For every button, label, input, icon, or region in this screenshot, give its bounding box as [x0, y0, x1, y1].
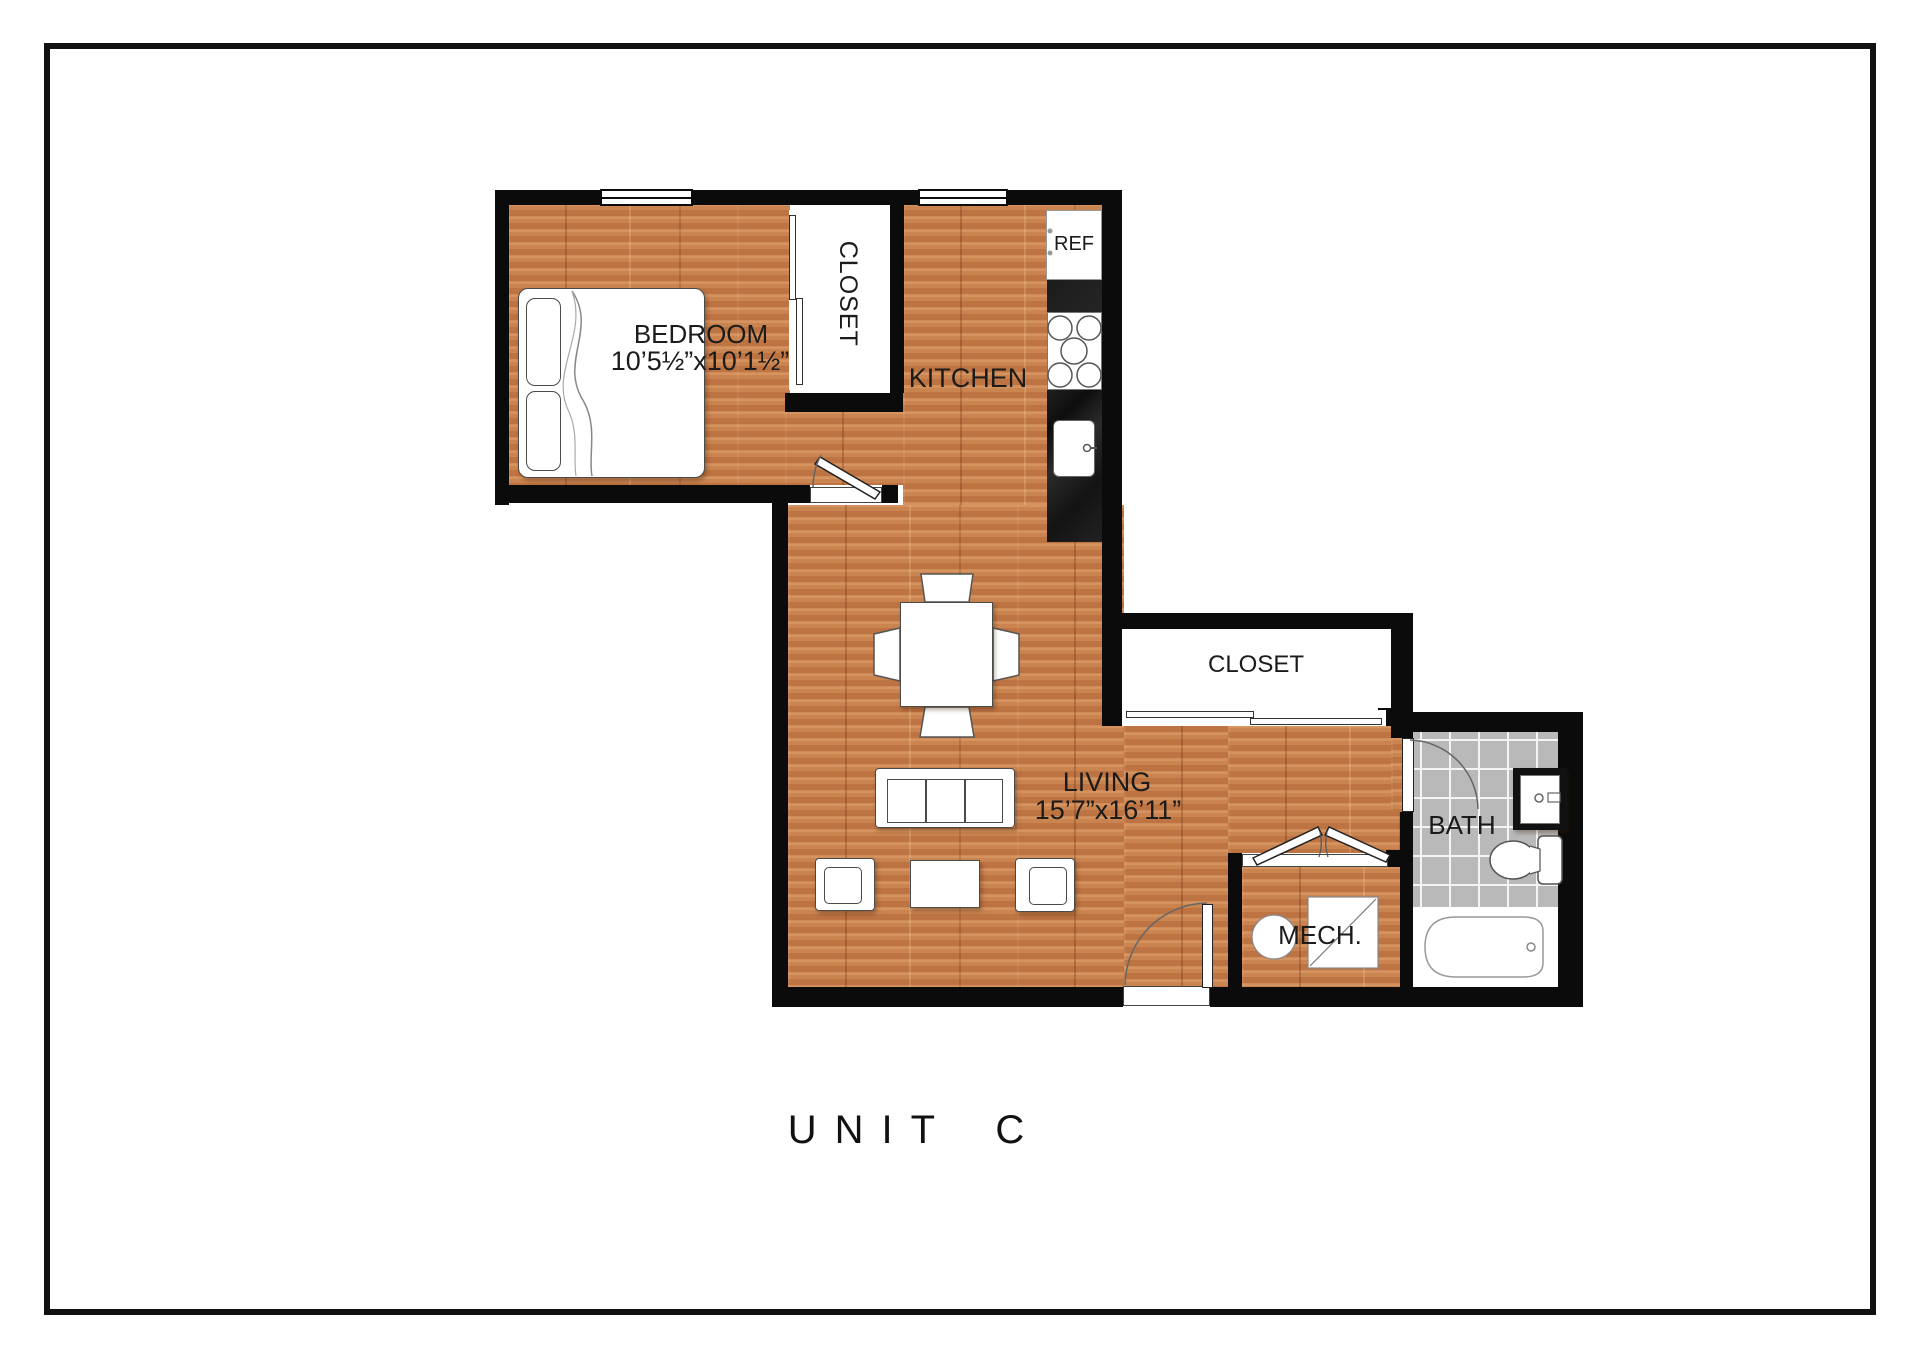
- bedroom-window: [600, 189, 693, 206]
- bed: [518, 288, 705, 478]
- hall-closet-label: CLOSET: [1106, 652, 1406, 678]
- wall-top: [495, 190, 1122, 205]
- mech-door-threshold: [1242, 854, 1388, 867]
- sofa-cushion: [887, 779, 926, 823]
- bath-door-leaf: [1402, 738, 1414, 812]
- bed-pillow: [526, 391, 561, 471]
- entry-door-threshold: [1123, 986, 1210, 1006]
- living-dims: 15’7”x16’11”: [958, 796, 1258, 826]
- wall-bedroom-left: [495, 190, 509, 505]
- armchair-left: [815, 858, 875, 911]
- wall-mech-top-stub-right: [1386, 850, 1400, 867]
- bathtub-alcove: [1413, 907, 1558, 987]
- wall-bedroom-bottom: [495, 485, 810, 503]
- kitchen-label: KITCHEN: [818, 364, 1118, 394]
- refrigerator: REF: [1046, 210, 1102, 280]
- wall-mech-left: [1228, 853, 1242, 987]
- wall-bath-right: [1558, 712, 1583, 1007]
- refrigerator-label: REF: [1047, 233, 1101, 255]
- wall-bedroom-closet-bottom: [785, 393, 903, 412]
- coffee-table: [910, 860, 980, 908]
- living-label: LIVING: [957, 768, 1257, 798]
- armchair-seat: [824, 867, 862, 904]
- wall-living-left: [772, 503, 788, 1003]
- kitchen-window: [918, 189, 1008, 206]
- hall-closet-slider: [1122, 710, 1386, 726]
- wall-bath-top: [1391, 712, 1583, 732]
- floor-plan-page: REF: [0, 0, 1920, 1357]
- bath-label: BATH: [1392, 811, 1532, 840]
- bedroom-dims: 10’5½”x10’1½”: [550, 347, 850, 377]
- kitchen-sink: [1053, 420, 1095, 477]
- armchair-right: [1015, 858, 1075, 912]
- mech-label: MECH.: [1220, 921, 1420, 950]
- wall-kitchen-right: [1102, 190, 1122, 726]
- bedroom-closet-label: CLOSET: [833, 214, 861, 374]
- bedroom-floor-strip: [785, 412, 912, 485]
- wall-bottom-west: [772, 987, 1123, 1007]
- living-floor: [788, 505, 1124, 987]
- wall-hall-closet-top: [1102, 613, 1413, 629]
- bedroom-door-threshold: [810, 487, 882, 503]
- bedroom-label: BEDROOM: [551, 320, 851, 349]
- armchair-seat: [1029, 867, 1067, 905]
- wall-bedroom-bottom-stub: [882, 485, 898, 503]
- unit-title: UNIT C: [615, 1108, 1215, 1152]
- wall-bottom-east: [1210, 987, 1583, 1007]
- dining-table: [900, 602, 993, 707]
- entry-door-leaf: [1202, 904, 1213, 988]
